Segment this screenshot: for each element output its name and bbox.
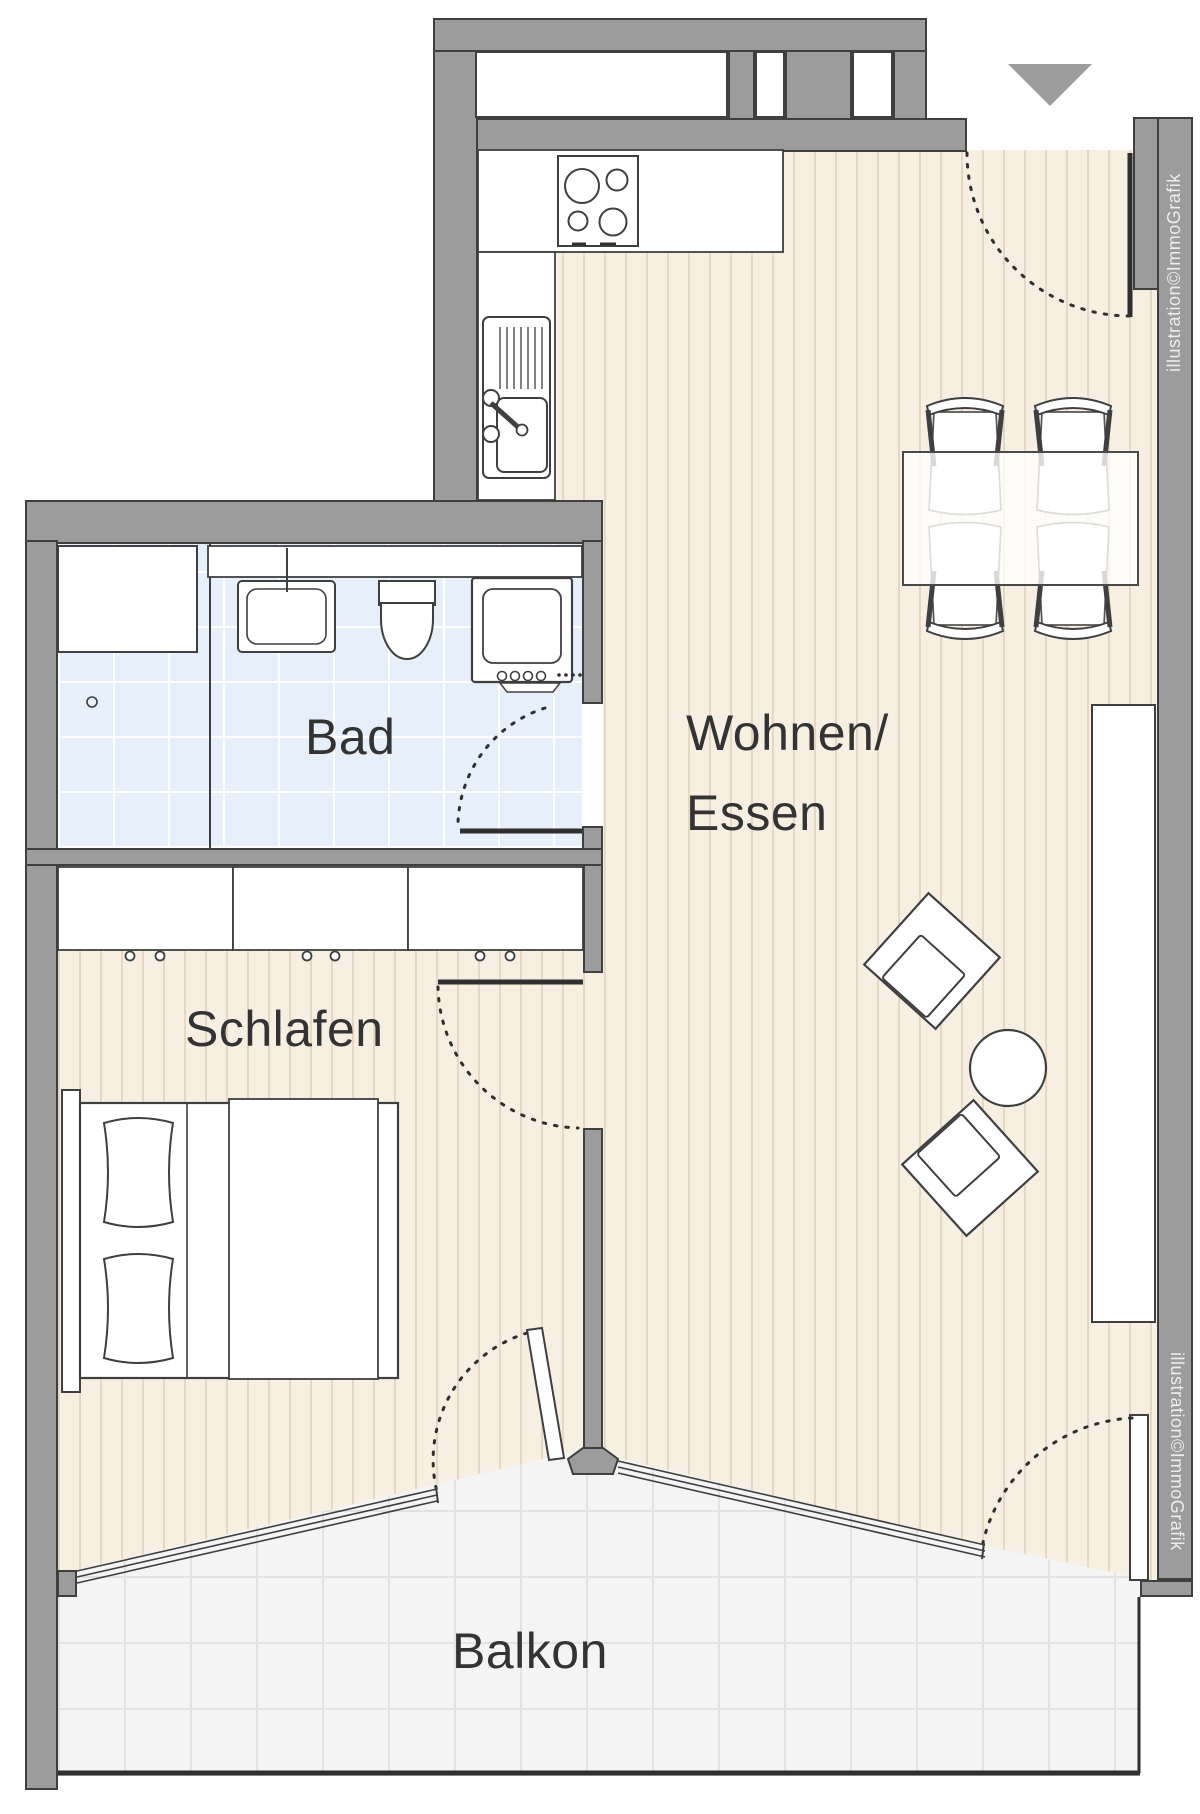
watermark-text: illustration©ImmoGrafik (1166, 1352, 1187, 1551)
bedroom-balcony-door (433, 1328, 564, 1492)
armchair-icon (864, 893, 1000, 1029)
plan-graphics (0, 0, 1200, 1814)
armchair-icon (902, 1100, 1038, 1236)
bathroom-cabinet (58, 546, 197, 652)
label-balcony: Balkon (452, 1622, 608, 1680)
toilet-icon (379, 581, 435, 659)
sideboard-icon (1092, 705, 1155, 1322)
entrance-door (967, 153, 1130, 317)
label-living-2: Essen (686, 784, 827, 842)
kitchen-sink-icon (483, 317, 550, 478)
dining-table-icon (903, 452, 1138, 585)
label-living-1: Wohnen/ (686, 704, 889, 762)
stove-icon (558, 156, 638, 246)
label-bath: Bad (305, 708, 395, 766)
label-bedroom: Schlafen (185, 1000, 384, 1058)
dining-set (903, 398, 1138, 639)
floor-plan: Bad Wohnen/ Essen Schlafen Balkon illust… (0, 0, 1200, 1814)
bathroom-door (458, 708, 582, 831)
shower-drain-icon (87, 697, 97, 707)
washing-machine-icon (472, 578, 582, 692)
bedroom-door (438, 982, 583, 1128)
bath-counter (208, 546, 582, 577)
side-table-icon (970, 1030, 1046, 1106)
wardrobe-row (58, 867, 583, 961)
living-balcony-door (982, 1415, 1148, 1580)
glazing-post (568, 1448, 618, 1474)
watermark-text: illustration©ImmoGrafik (1164, 173, 1185, 372)
bed-icon (62, 1090, 398, 1392)
balcony-glazing (77, 1461, 985, 1583)
